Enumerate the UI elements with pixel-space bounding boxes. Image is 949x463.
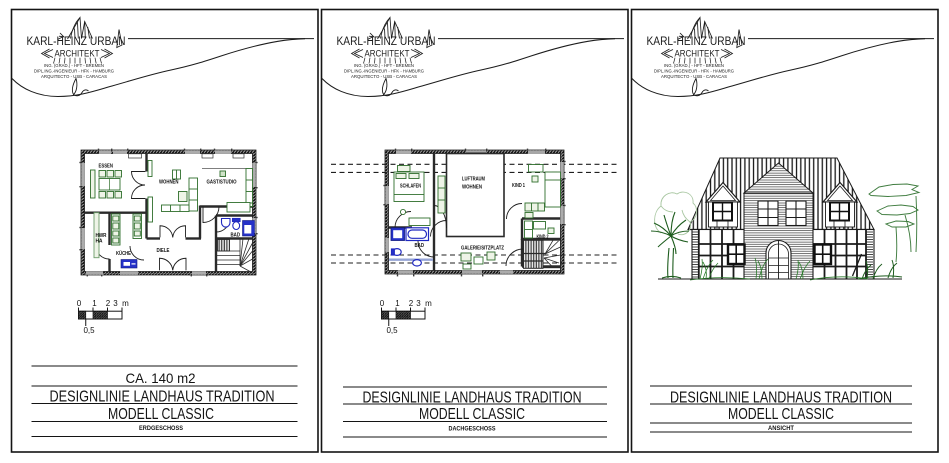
svg-text:MODELL CLASSIC: MODELL CLASSIC (108, 406, 214, 423)
svg-text:ANSICHT: ANSICHT (768, 426, 794, 432)
svg-text:3: 3 (113, 299, 118, 308)
svg-text:WOHNEN: WOHNEN (159, 180, 179, 186)
svg-text:0: 0 (380, 299, 385, 308)
svg-text:DIELE: DIELE (157, 248, 171, 254)
svg-text:0,5: 0,5 (386, 326, 398, 335)
svg-text:GAST/STUDIO: GAST/STUDIO (207, 180, 237, 186)
svg-text:ESSEN: ESSEN (99, 164, 114, 170)
svg-text:LUFTRAUM: LUFTRAUM (462, 177, 485, 183)
svg-text:MODELL CLASSIC: MODELL CLASSIC (728, 406, 834, 423)
svg-text:GALERIE/SITZPLATZ: GALERIE/SITZPLATZ (461, 246, 504, 252)
svg-text:1: 1 (395, 299, 400, 308)
svg-text:DESIGNLINIE LANDHAUS TRADITION: DESIGNLINIE LANDHAUS TRADITION (50, 389, 275, 406)
svg-text:ERDGESCHOSS: ERDGESCHOSS (139, 425, 184, 432)
svg-text:KIND 1: KIND 1 (512, 183, 525, 189)
svg-text:m: m (122, 299, 129, 308)
svg-text:KIND 2: KIND 2 (537, 235, 549, 241)
svg-text:HA: HA (96, 239, 103, 245)
svg-text:KÜCHE: KÜCHE (116, 250, 132, 257)
svg-text:SCHLAFEN: SCHLAFEN (400, 184, 421, 190)
svg-text:WOHNEN: WOHNEN (462, 185, 482, 191)
svg-text:2: 2 (106, 299, 111, 308)
svg-text:2: 2 (409, 299, 414, 308)
svg-text:CA. 140 m2: CA. 140 m2 (126, 370, 196, 386)
svg-text:1: 1 (92, 299, 97, 308)
svg-text:BAD: BAD (415, 243, 425, 249)
svg-text:m: m (425, 299, 432, 308)
svg-text:0,5: 0,5 (83, 326, 95, 335)
svg-text:DESIGNLINIE LANDHAUS TRADITION: DESIGNLINIE LANDHAUS TRADITION (670, 390, 892, 407)
svg-text:DESIGNLINIE LANDHAUS TRADITION: DESIGNLINIE LANDHAUS TRADITION (363, 390, 582, 407)
svg-text:MODELL CLASSIC: MODELL CLASSIC (419, 406, 525, 423)
svg-text:0: 0 (77, 299, 82, 308)
svg-text:3: 3 (416, 299, 421, 308)
svg-text:BAD: BAD (231, 233, 241, 239)
svg-text:DACHGESCHOSS: DACHGESCHOSS (449, 426, 497, 433)
